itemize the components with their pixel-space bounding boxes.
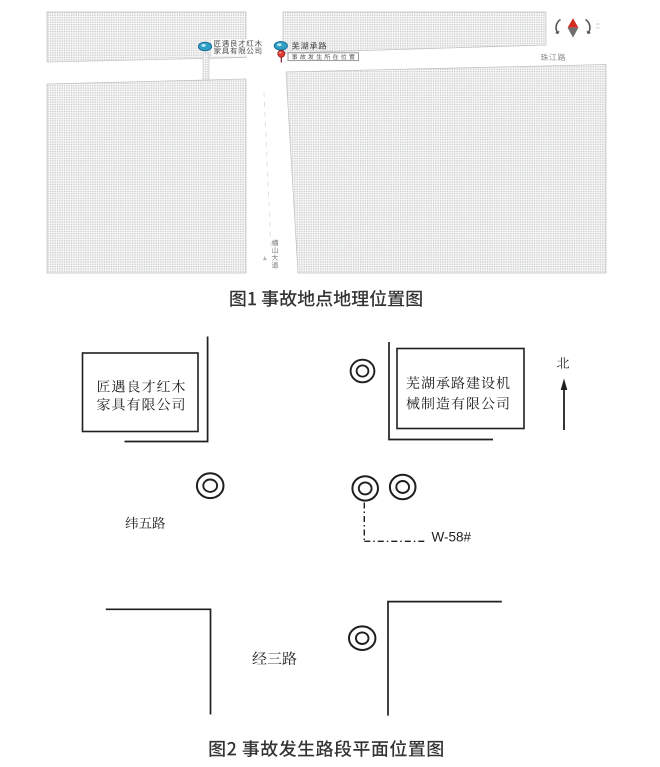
svg-text:W-58#: W-58#: [432, 530, 472, 545]
